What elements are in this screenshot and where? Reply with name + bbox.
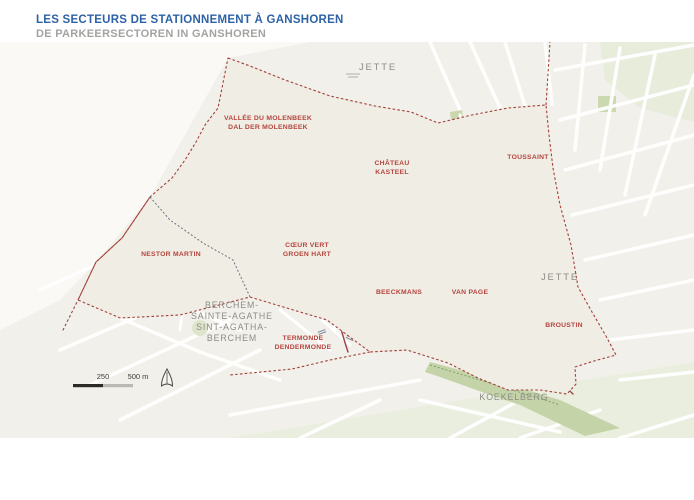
sector-label-termonde-nl: DENDERMONDE <box>275 344 332 351</box>
sector-label-coeur-vert-nl: GROEN HART <box>283 251 332 258</box>
scale-label-500m: 500 m <box>128 372 149 381</box>
scale-bar-second-half <box>103 384 133 387</box>
page-title-nl: DE PARKEERSECTOREN IN GANSHOREN <box>36 27 344 41</box>
ganshoren-parking-map-page: LES SECTEURS DE STATIONNEMENT À GANSHORE… <box>0 0 694 500</box>
sector-label-vallee-nl: DAL DER MOLENBEEK <box>228 124 308 131</box>
label-berchem-4: BERCHEM <box>207 333 257 343</box>
sector-label-toussaint: TOUSSAINT <box>507 154 549 161</box>
label-jette-north: JETTE <box>359 62 397 73</box>
label-koekelberg: KOEKELBERG <box>479 392 548 402</box>
sector-label-broustin: BROUSTIN <box>545 322 583 329</box>
sector-label-vallee-fr: VALLÉE DU MOLENBEEK <box>224 113 312 122</box>
sector-label-coeur-vert-fr: CŒUR VERT <box>285 242 329 249</box>
label-jette-east: JETTE <box>541 272 579 283</box>
scale-bar-first-half <box>73 384 103 387</box>
sector-label-chateau-nl: KASTEEL <box>375 169 408 176</box>
map-title-block: LES SECTEURS DE STATIONNEMENT À GANSHORE… <box>36 13 344 41</box>
sector-label-van-page: VAN PAGE <box>452 289 489 296</box>
label-berchem-3: SINT-AGATHA- <box>196 322 268 332</box>
page-title-fr: LES SECTEURS DE STATIONNEMENT À GANSHORE… <box>36 13 344 27</box>
label-berchem-2: SAINTE-AGATHE <box>191 311 273 321</box>
label-berchem-1: BERCHEM- <box>205 300 259 310</box>
sector-label-termonde-fr: TERMONDE <box>283 335 324 342</box>
scale-label-250: 250 <box>97 372 110 381</box>
sector-label-chateau-fr: CHÂTEAU <box>375 158 410 167</box>
sector-label-nestor-martin: NESTOR MARTIN <box>141 251 201 258</box>
ganshoren-parking-map: VALLÉE DU MOLENBEEK DAL DER MOLENBEEK CH… <box>0 0 694 500</box>
sector-label-beeckmans: BEECKMANS <box>376 289 422 296</box>
